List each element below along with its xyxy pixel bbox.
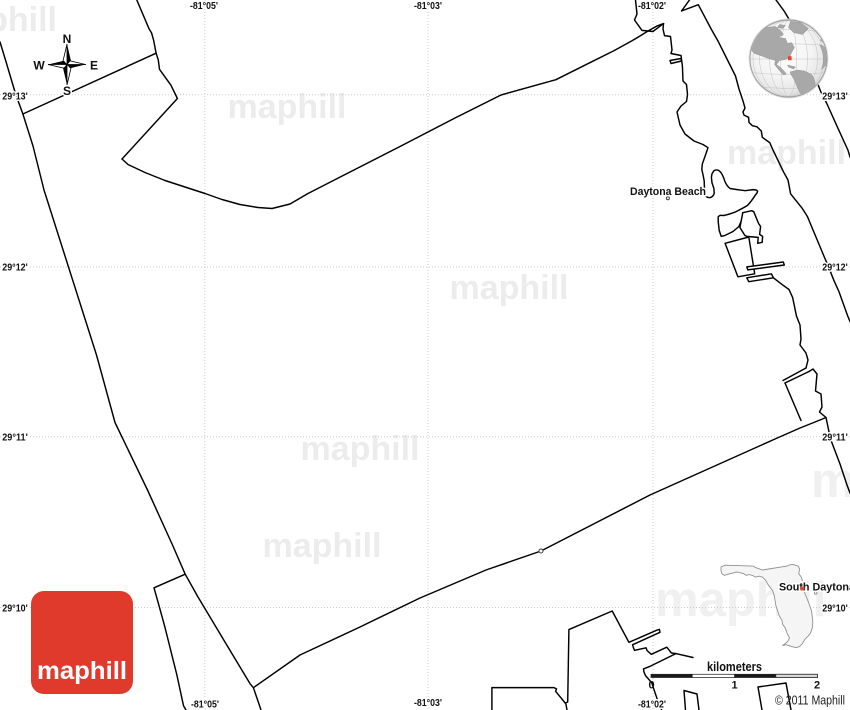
svg-text:29°11': 29°11': [2, 432, 28, 444]
svg-text:-81°03': -81°03': [414, 697, 442, 709]
svg-text:maphill: maphill: [227, 88, 346, 126]
svg-text:1: 1: [731, 680, 737, 692]
svg-text:-81°05': -81°05': [190, 0, 218, 12]
svg-text:S: S: [63, 84, 71, 98]
svg-text:maphill: maphill: [300, 430, 419, 468]
svg-text:-81°03': -81°03': [414, 0, 442, 12]
svg-text:29°13': 29°13': [2, 91, 28, 103]
svg-text:29°12': 29°12': [2, 262, 28, 274]
svg-text:-81°02': -81°02': [638, 0, 666, 12]
svg-text:-81°05': -81°05': [191, 699, 219, 710]
svg-text:29°13': 29°13': [822, 91, 848, 103]
svg-text:maphill: maphill: [449, 269, 568, 307]
svg-text:0: 0: [648, 680, 654, 692]
svg-text:2: 2: [814, 680, 820, 692]
svg-text:29°12': 29°12': [822, 262, 848, 274]
svg-text:29°10': 29°10': [822, 603, 848, 615]
svg-text:maphill: maphill: [811, 454, 850, 508]
svg-text:South Daytona: South Daytona: [779, 582, 850, 594]
svg-text:E: E: [90, 59, 98, 73]
svg-text:maphill: maphill: [37, 657, 127, 685]
svg-text:maphill: maphill: [262, 527, 381, 565]
svg-text:29°11': 29°11': [822, 432, 848, 444]
svg-text:W: W: [33, 59, 45, 73]
svg-text:maphill: maphill: [0, 1, 57, 39]
svg-text:maphill: maphill: [727, 134, 846, 172]
svg-text:-81°02': -81°02': [638, 699, 666, 710]
svg-text:© 2011 Maphill: © 2011 Maphill: [775, 693, 845, 708]
svg-text:29°10': 29°10': [2, 603, 28, 615]
svg-text:Daytona Beach: Daytona Beach: [630, 186, 706, 198]
svg-text:N: N: [63, 32, 72, 46]
svg-text:kilometers: kilometers: [707, 659, 762, 674]
